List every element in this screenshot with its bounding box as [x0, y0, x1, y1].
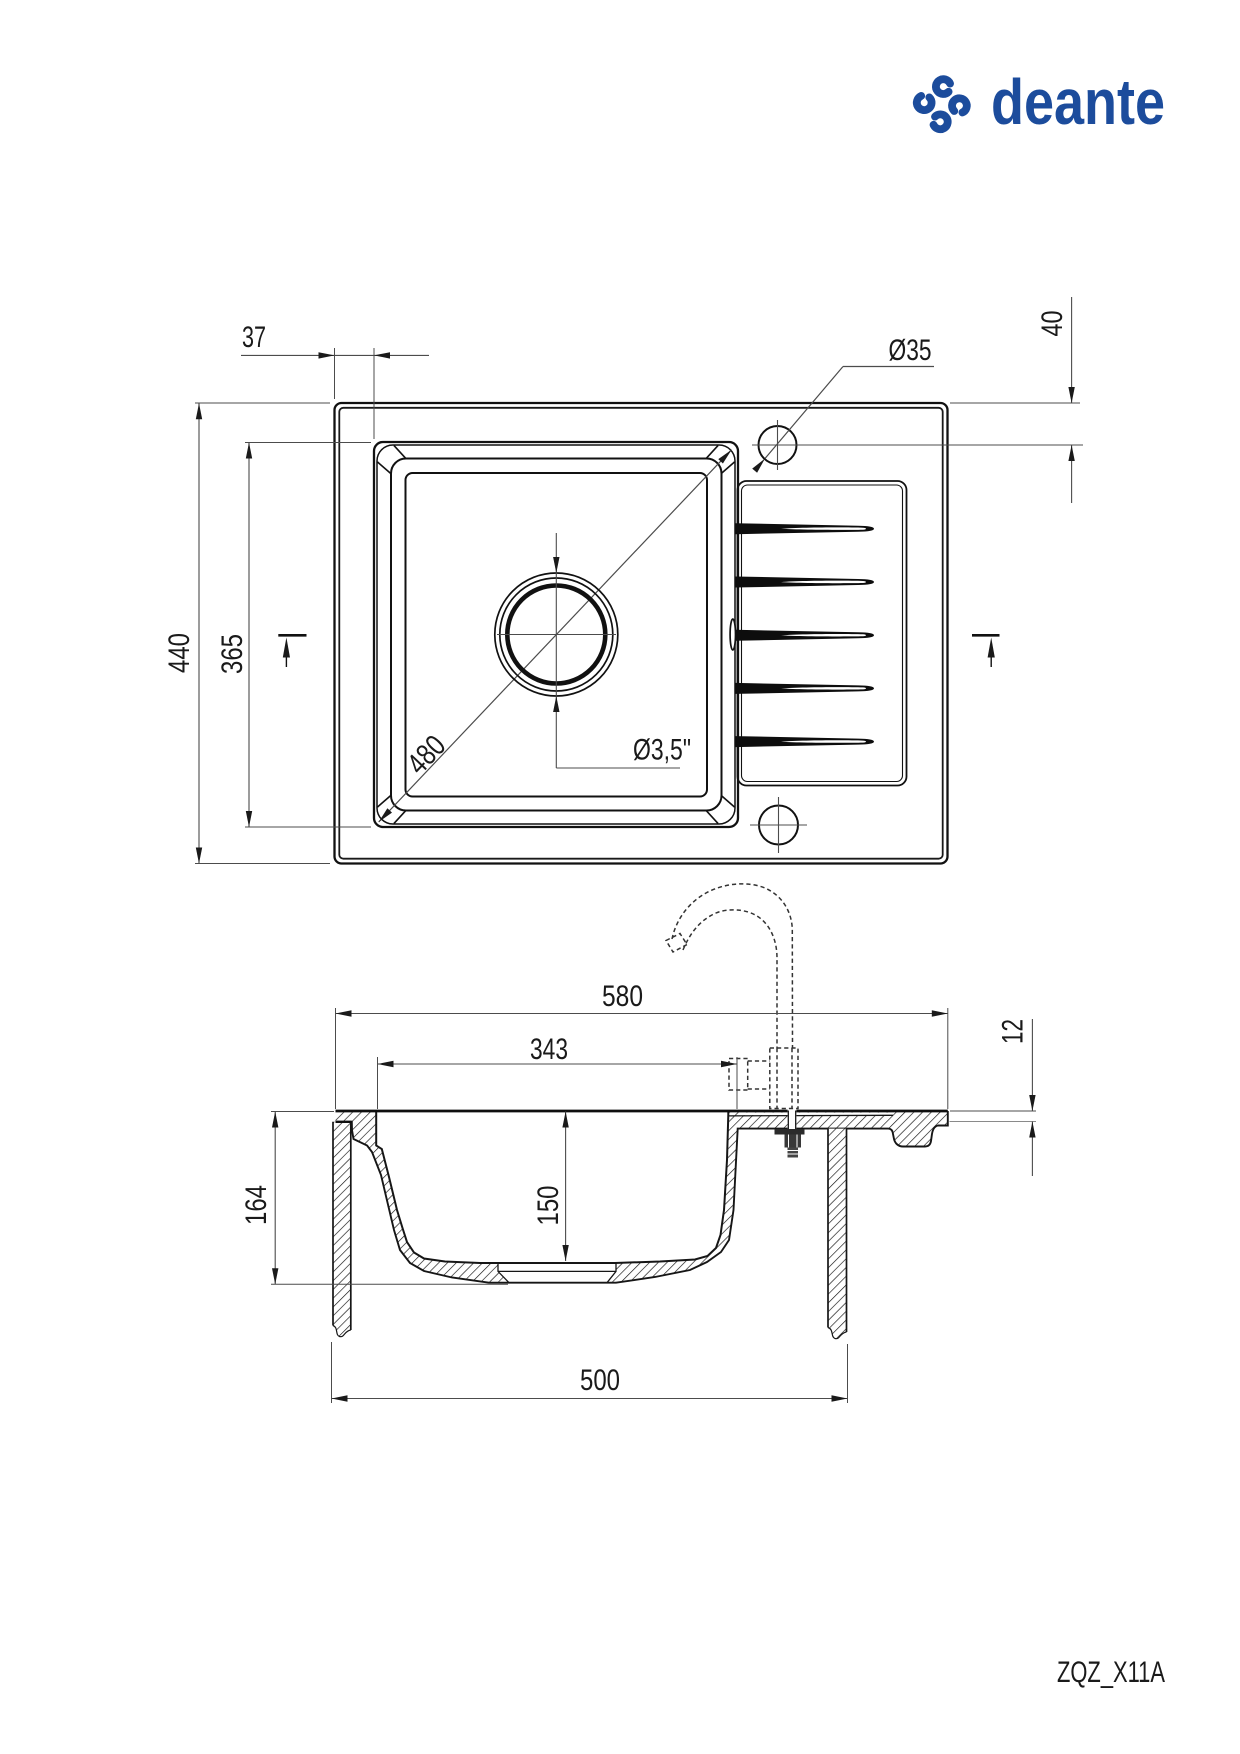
svg-text:500: 500 — [580, 1364, 620, 1397]
svg-text:12: 12 — [997, 1019, 1030, 1044]
svg-text:343: 343 — [530, 1033, 568, 1066]
svg-text:Ø3,5": Ø3,5" — [633, 734, 691, 767]
svg-text:365: 365 — [216, 634, 249, 674]
svg-text:164: 164 — [240, 1185, 273, 1225]
svg-text:40: 40 — [1036, 311, 1069, 337]
svg-text:580: 580 — [602, 980, 643, 1013]
svg-text:37: 37 — [242, 321, 266, 354]
svg-text:deante: deante — [991, 66, 1165, 138]
svg-text:Ø35: Ø35 — [889, 334, 932, 367]
svg-text:440: 440 — [163, 633, 196, 673]
svg-text:150: 150 — [532, 1186, 565, 1226]
svg-text:ZQZ_X11A: ZQZ_X11A — [1057, 1656, 1165, 1689]
